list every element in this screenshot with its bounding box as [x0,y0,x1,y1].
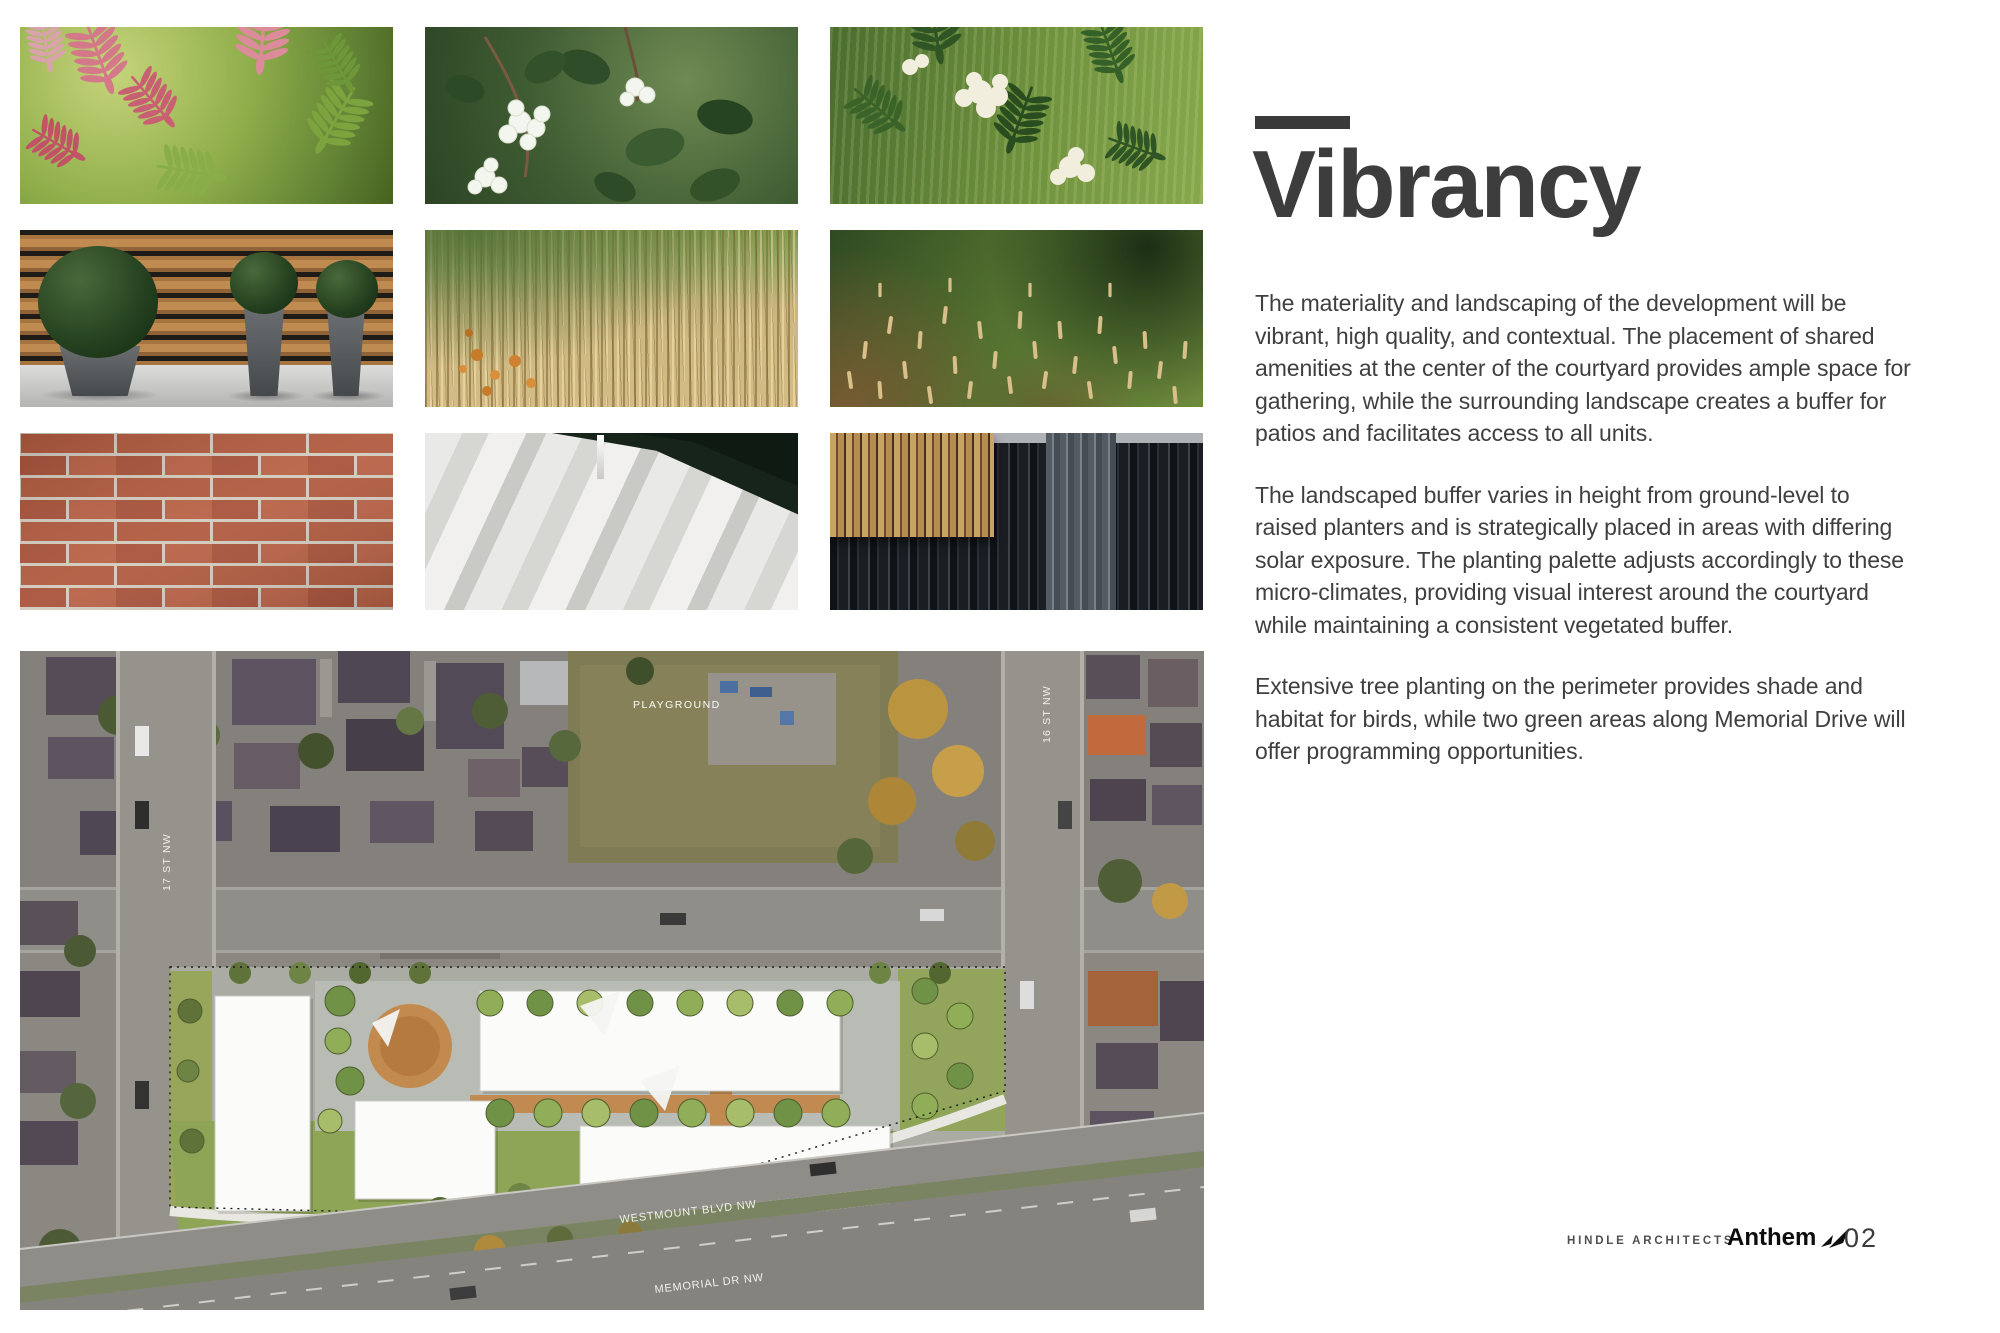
playground-label: PLAYGROUND [633,699,721,711]
light-bollard [597,435,604,479]
page-number: 02 [1844,1223,1878,1254]
photo-white-flower-shrub [830,27,1203,204]
anthem-wordmark: Anthem [1727,1224,1816,1252]
wood-slat-panel [830,433,994,537]
street-16-label: 16 ST NW [1041,685,1053,743]
photo-feather-reed-grass [425,230,798,407]
photo-snowberry-white-berries [425,27,798,204]
street-17-label: 17 ST NW [161,833,173,891]
photo-mugo-pine-shrubs [830,230,1203,407]
berry-illustration [425,27,798,204]
foliage-illustration [20,27,393,204]
photo-false-spirea-pink-foliage [20,27,393,204]
brick-pattern [20,433,393,610]
body-text-column: The materiality and landscaping of the d… [1255,287,1915,768]
photo-red-brick-wall [20,433,393,610]
anthem-logo: Anthem [1727,1224,1849,1252]
orange-flowers [459,365,467,373]
title-accent-bar [1255,116,1350,129]
photo-concrete-paver-walkway [425,433,798,610]
photo-boxwood-topiary-planters [20,230,393,407]
paragraph-materiality: The materiality and landscaping of the d… [1255,287,1915,450]
hindle-architects-wordmark: HINDLE ARCHITECTS [1567,1235,1734,1247]
photo-wood-slat-metal-facade [830,433,1203,610]
pine-candles-illustration [830,230,1203,407]
page-title: Vibrancy [1252,130,1640,240]
gray-fin-section [1046,433,1116,610]
boxwood-ball-large [38,246,158,358]
boxwood-ball [230,252,298,314]
boxwood-ball [316,260,378,318]
playground-area [568,651,898,863]
paragraph-tree-planting: Extensive tree planting on the perimeter… [1255,670,1915,768]
flower-illustration [830,27,1203,204]
site-plan-image: PLAYGROUND 17 ST NW 16 ST NW WESTMOUNT B… [20,651,1204,1310]
green-backdrop [425,230,798,407]
presentation-page: PLAYGROUND 17 ST NW 16 ST NW WESTMOUNT B… [0,0,2000,1333]
paragraph-landscaped-buffer: The landscaped buffer varies in height f… [1255,479,1915,642]
